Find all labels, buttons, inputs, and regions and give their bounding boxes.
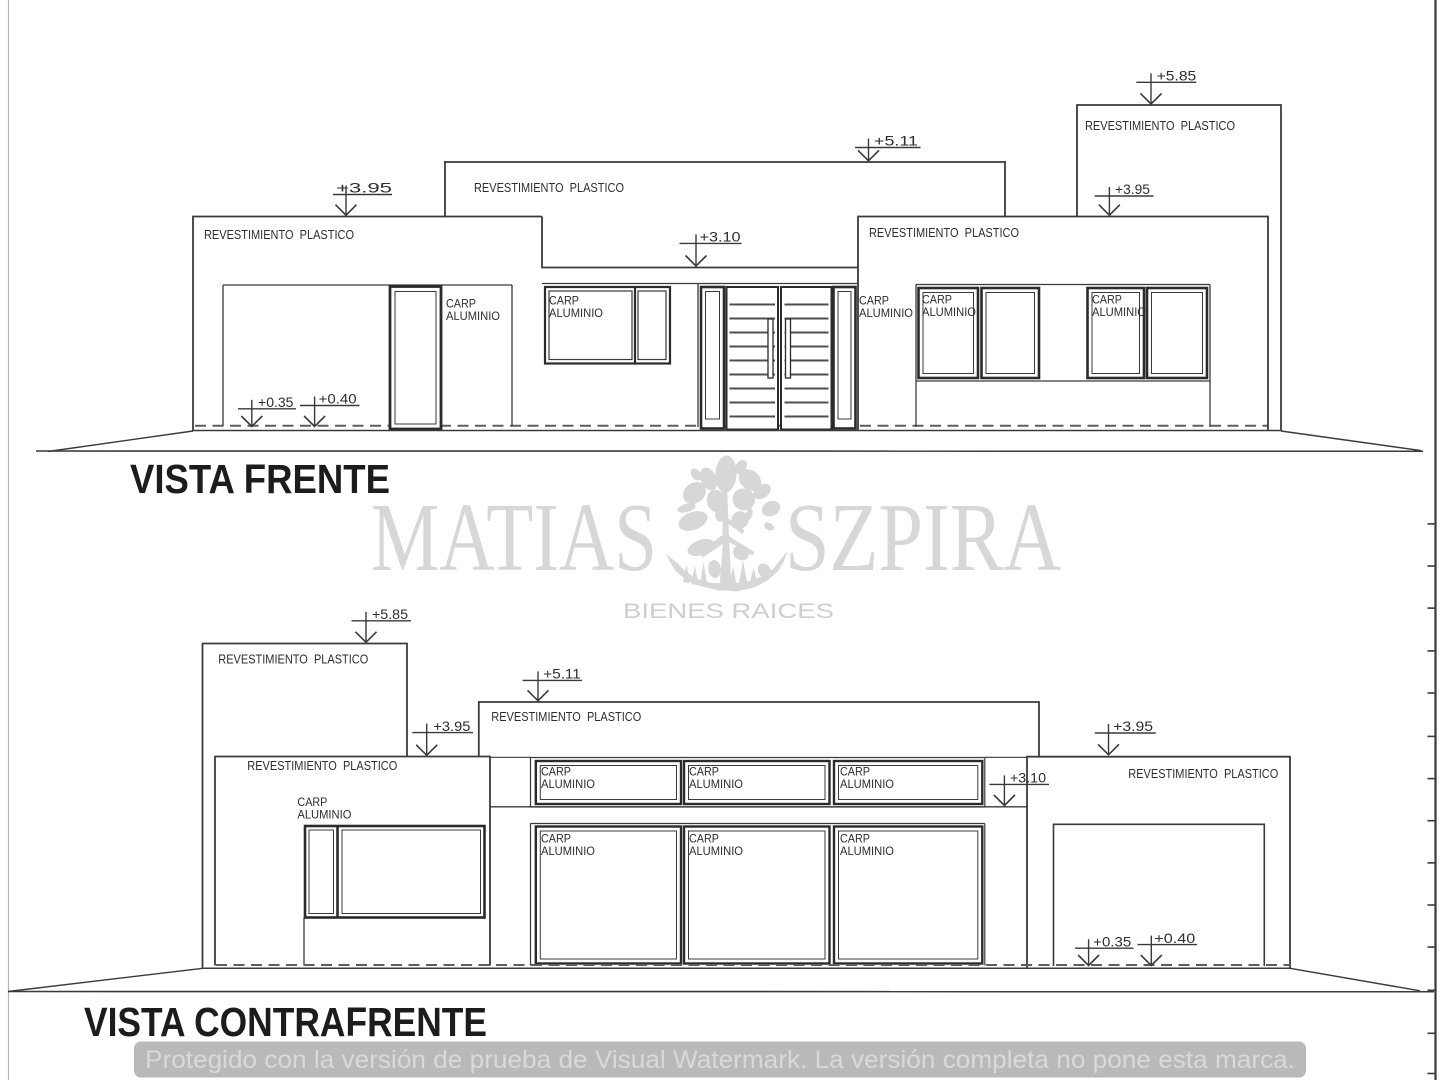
- svg-text:ALUMINIO: ALUMINIO: [1092, 305, 1146, 319]
- svg-text:ALUMINIO: ALUMINIO: [840, 777, 894, 791]
- svg-text:REVESTIMIENTO PLASTICO: REVESTIMIENTO PLASTICO: [204, 227, 354, 242]
- svg-text:ALUMINIO: ALUMINIO: [446, 309, 500, 323]
- svg-text:+3.10: +3.10: [1010, 771, 1046, 786]
- svg-text:ALUMINIO: ALUMINIO: [922, 305, 976, 319]
- svg-text:ALUMINIO: ALUMINIO: [689, 777, 743, 791]
- svg-text:ALUMINIO: ALUMINIO: [541, 777, 595, 791]
- svg-text:+3.95: +3.95: [433, 719, 470, 734]
- svg-text:Protegido con la versión de pr: Protegido con la versión de prueba de Vi…: [145, 1046, 1295, 1074]
- svg-text:+5.11: +5.11: [874, 134, 918, 149]
- svg-text:MATIAS: MATIAS: [371, 484, 657, 592]
- svg-text:REVESTIMIENTO PLASTICO: REVESTIMIENTO PLASTICO: [474, 180, 624, 195]
- svg-text:ALUMINIO: ALUMINIO: [840, 844, 894, 858]
- svg-text:+0.35: +0.35: [1093, 934, 1131, 949]
- svg-text:ALUMINIO: ALUMINIO: [689, 844, 743, 858]
- svg-text:+0.40: +0.40: [319, 392, 357, 407]
- svg-text:ALUMINIO: ALUMINIO: [859, 306, 913, 320]
- svg-text:ALUMINIO: ALUMINIO: [541, 844, 595, 858]
- svg-text:+5.85: +5.85: [372, 607, 408, 622]
- svg-text:ALUMINIO: ALUMINIO: [549, 306, 603, 320]
- svg-text:BIENES RAICES: BIENES RAICES: [623, 600, 834, 623]
- svg-text:+0.35: +0.35: [258, 395, 294, 410]
- svg-text:SZPIRA: SZPIRA: [785, 484, 1061, 592]
- svg-text:REVESTIMIENTO PLASTICO: REVESTIMIENTO PLASTICO: [1128, 766, 1278, 781]
- svg-text:REVESTIMIENTO PLASTICO: REVESTIMIENTO PLASTICO: [491, 709, 641, 724]
- svg-text:REVESTIMIENTO PLASTICO: REVESTIMIENTO PLASTICO: [1085, 118, 1235, 133]
- svg-text:ALUMINIO: ALUMINIO: [297, 808, 351, 822]
- svg-text:+3.95: +3.95: [1113, 719, 1153, 734]
- svg-text:+3.95: +3.95: [1115, 182, 1150, 197]
- svg-text:+0.40: +0.40: [1154, 931, 1195, 946]
- svg-text:REVESTIMIENTO PLASTICO: REVESTIMIENTO PLASTICO: [869, 225, 1019, 240]
- svg-text:+3.95: +3.95: [336, 181, 392, 196]
- svg-text:+5.85: +5.85: [1157, 69, 1197, 84]
- svg-text:+5.11: +5.11: [543, 667, 581, 682]
- svg-text:+3.10: +3.10: [700, 230, 741, 245]
- svg-text:REVESTIMIENTO PLASTICO: REVESTIMIENTO PLASTICO: [218, 652, 368, 667]
- svg-text:VISTA CONTRAFRENTE: VISTA CONTRAFRENTE: [84, 999, 487, 1045]
- svg-text:VISTA FRENTE: VISTA FRENTE: [130, 456, 390, 502]
- svg-text:REVESTIMIENTO PLASTICO: REVESTIMIENTO PLASTICO: [247, 758, 397, 773]
